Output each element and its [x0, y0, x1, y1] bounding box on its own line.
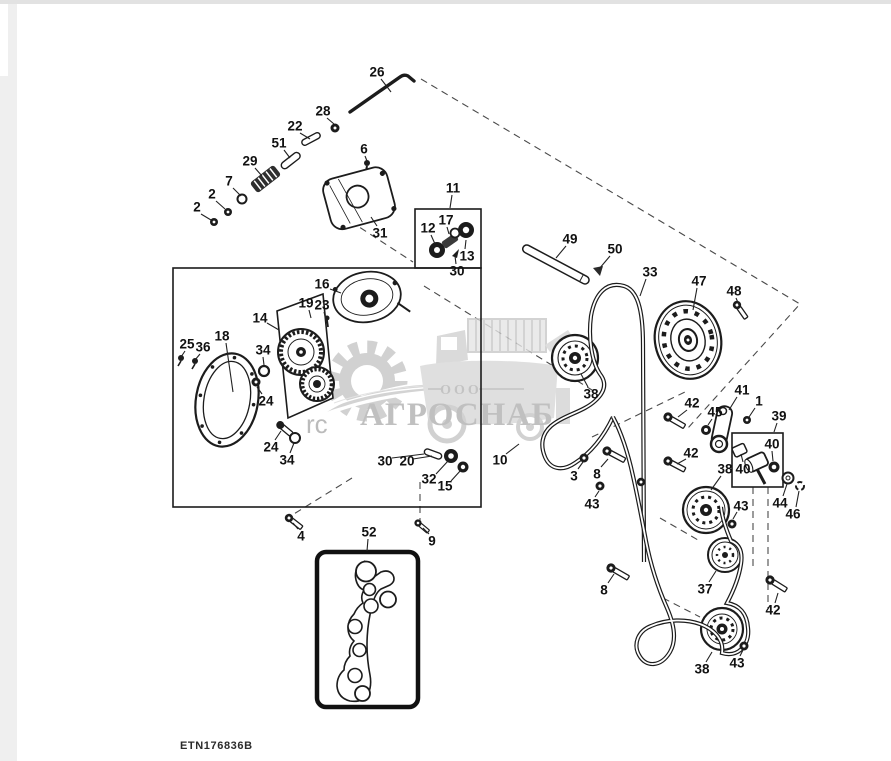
- part-callout-47: 47: [691, 274, 706, 289]
- callout-leader-41: [729, 397, 737, 410]
- clip-50: [593, 266, 603, 276]
- callout-leader-8: [608, 574, 614, 583]
- part-callout-38: 38: [717, 462, 733, 477]
- callout-leader-28: [327, 118, 334, 124]
- part-callout-11: 11: [446, 181, 461, 196]
- part-callout-12: 12: [420, 221, 435, 236]
- part-callout-22: 22: [287, 119, 302, 134]
- part-callout-8: 8: [600, 583, 608, 598]
- part-callout-41: 41: [734, 383, 750, 398]
- callout-leader-7: [233, 188, 241, 196]
- callout-leader-45: [708, 419, 712, 425]
- callout-leader-29: [255, 168, 262, 176]
- shaft-20: [424, 448, 443, 460]
- part-callout-32: 32: [421, 472, 436, 487]
- part-callout-49: 49: [562, 232, 577, 247]
- washer-44: [783, 473, 794, 484]
- part-callout-2: 2: [193, 200, 201, 215]
- part-callout-42: 42: [684, 396, 699, 411]
- cover-16: [329, 265, 411, 327]
- part-callout-43: 43: [733, 499, 749, 514]
- part-callout-45: 45: [707, 405, 723, 420]
- part-callout-7: 7: [225, 174, 233, 189]
- part-callout-42: 42: [683, 446, 698, 461]
- part-callout-24: 24: [258, 394, 274, 409]
- part-callout-43: 43: [729, 656, 745, 671]
- part-callout-17: 17: [438, 213, 453, 228]
- screw-36: [192, 358, 198, 364]
- parts-diagram-page: ООО АГРОСНАБ rc: [0, 0, 891, 761]
- part-callout-18: 18: [214, 329, 230, 344]
- part-callout-30: 30: [377, 454, 392, 469]
- part-callout-13: 13: [459, 249, 475, 264]
- callout-leader-51: [284, 150, 290, 158]
- callout-leader-8: [601, 459, 608, 467]
- callout-leader-2: [201, 214, 211, 220]
- callout-leader-36: [195, 354, 200, 360]
- part-callout-38: 38: [583, 387, 599, 402]
- callout-leader-20: [413, 456, 432, 459]
- callout-leader-42: [775, 593, 778, 603]
- callout-leader-50: [599, 256, 610, 269]
- callout-leader-17: [447, 227, 449, 234]
- rod-49: [521, 244, 590, 286]
- part-callout-23: 23: [314, 298, 330, 313]
- part-callout-9: 9: [428, 534, 436, 549]
- part-callout-19: 19: [298, 296, 313, 311]
- screw-25: [178, 355, 184, 361]
- callout-leader-37: [709, 571, 716, 582]
- callout-leader-11: [450, 195, 452, 208]
- washer-34b: [290, 433, 300, 443]
- part-callout-29: 29: [242, 154, 257, 169]
- belt-routing-inset: [317, 552, 418, 707]
- part-callout-46: 46: [785, 507, 801, 522]
- washer-34a: [259, 366, 269, 376]
- part-callout-37: 37: [697, 582, 712, 597]
- part-callout-2: 2: [208, 187, 216, 202]
- part-callout-15: 15: [437, 479, 453, 494]
- pulley-47: [648, 295, 729, 385]
- callout-leader-2: [216, 201, 225, 209]
- washer-7: [238, 195, 247, 204]
- callout-leader-34: [263, 357, 264, 365]
- part-callout-33: 33: [642, 265, 658, 280]
- callout-leader-32: [436, 461, 448, 474]
- part-callout-26: 26: [369, 65, 385, 80]
- belt-33: [542, 285, 644, 562]
- callout-leader-49: [556, 246, 566, 258]
- part-callout-42: 42: [765, 603, 780, 618]
- part-callout-31: 31: [372, 226, 388, 241]
- part-callout-38: 38: [694, 662, 710, 677]
- watermark: ООО АГРОСНАБ rc: [306, 319, 572, 441]
- part-callout-43: 43: [584, 497, 600, 512]
- callout-leader-34: [290, 443, 294, 453]
- callout-leader-38: [711, 476, 721, 490]
- part-callout-4: 4: [297, 529, 305, 544]
- part-callout-34: 34: [279, 453, 295, 468]
- gasket-18: [188, 348, 265, 451]
- part-callout-1: 1: [755, 394, 763, 409]
- spring-29: [250, 165, 282, 194]
- part-callout-16: 16: [314, 277, 330, 292]
- watermark-company-type: ООО: [440, 383, 482, 398]
- circlip-46: [796, 482, 804, 490]
- part-callout-6: 6: [360, 142, 368, 157]
- part-callout-8: 8: [593, 467, 601, 482]
- part-callout-30: 30: [449, 264, 464, 279]
- part-callout-3: 3: [570, 469, 578, 484]
- part-callout-34: 34: [255, 343, 271, 358]
- callout-leader-38: [706, 652, 712, 662]
- part-callout-24: 24: [263, 440, 279, 455]
- part-callout-36: 36: [195, 340, 211, 355]
- callout-leader-12: [431, 235, 435, 244]
- part-callout-40: 40: [764, 437, 779, 452]
- pin-51: [280, 151, 302, 170]
- pin-22: [301, 132, 321, 147]
- watermark-company-name: АГРОСНАБ: [360, 397, 554, 433]
- callout-leader-39: [774, 423, 777, 432]
- callout-leader-1: [749, 408, 755, 417]
- part-callout-20: 20: [399, 454, 414, 469]
- part-callout-48: 48: [726, 284, 742, 299]
- callout-leader-33: [640, 279, 646, 296]
- timing-pulley-lower: [300, 367, 334, 401]
- callout-leader-52: [367, 539, 368, 551]
- callout-leader-40: [772, 451, 773, 461]
- callout-leader-10: [506, 444, 519, 454]
- part-callout-52: 52: [361, 525, 376, 540]
- callout-leader-14: [267, 323, 279, 330]
- part-callout-10: 10: [492, 453, 507, 468]
- watermark-fragment: rc: [306, 409, 328, 439]
- part-callout-51: 51: [271, 136, 287, 151]
- callout-leader-46: [796, 491, 799, 507]
- cover-31: [320, 164, 398, 232]
- part-callout-28: 28: [315, 104, 331, 119]
- figure-code: ETN176836B: [180, 740, 253, 752]
- part-callout-25: 25: [179, 337, 195, 352]
- callout-leader-42: [678, 410, 687, 417]
- part-callout-14: 14: [252, 311, 268, 326]
- part-callout-50: 50: [607, 242, 622, 257]
- part-callout-40: 40: [735, 462, 750, 477]
- callout-leader-3: [578, 462, 583, 469]
- exploded-diagram-canvas: ООО АГРОСНАБ rc: [0, 0, 891, 761]
- part-callout-39: 39: [771, 409, 786, 424]
